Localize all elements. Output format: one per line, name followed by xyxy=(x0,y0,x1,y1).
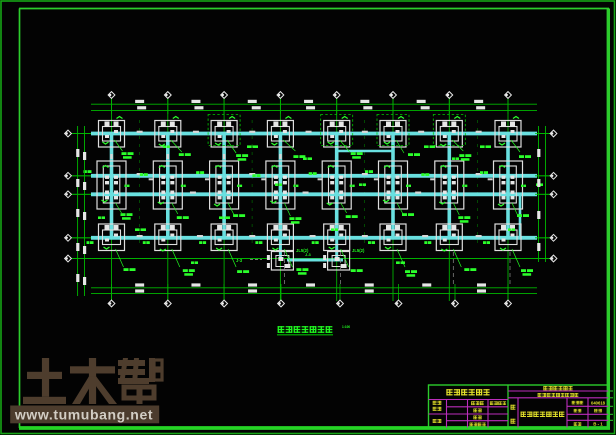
svg-text:1:100: 1:100 xyxy=(342,325,350,329)
svg-text:J-3: J-3 xyxy=(236,258,243,263)
svg-text:www.tumubang.net: www.tumubang.net xyxy=(14,407,153,423)
svg-text:JL5(2): JL5(2) xyxy=(352,248,365,253)
svg-text:J-3: J-3 xyxy=(305,252,312,257)
svg-text:040618: 040618 xyxy=(591,400,606,405)
svg-text:B - 1: B - 1 xyxy=(593,422,603,427)
